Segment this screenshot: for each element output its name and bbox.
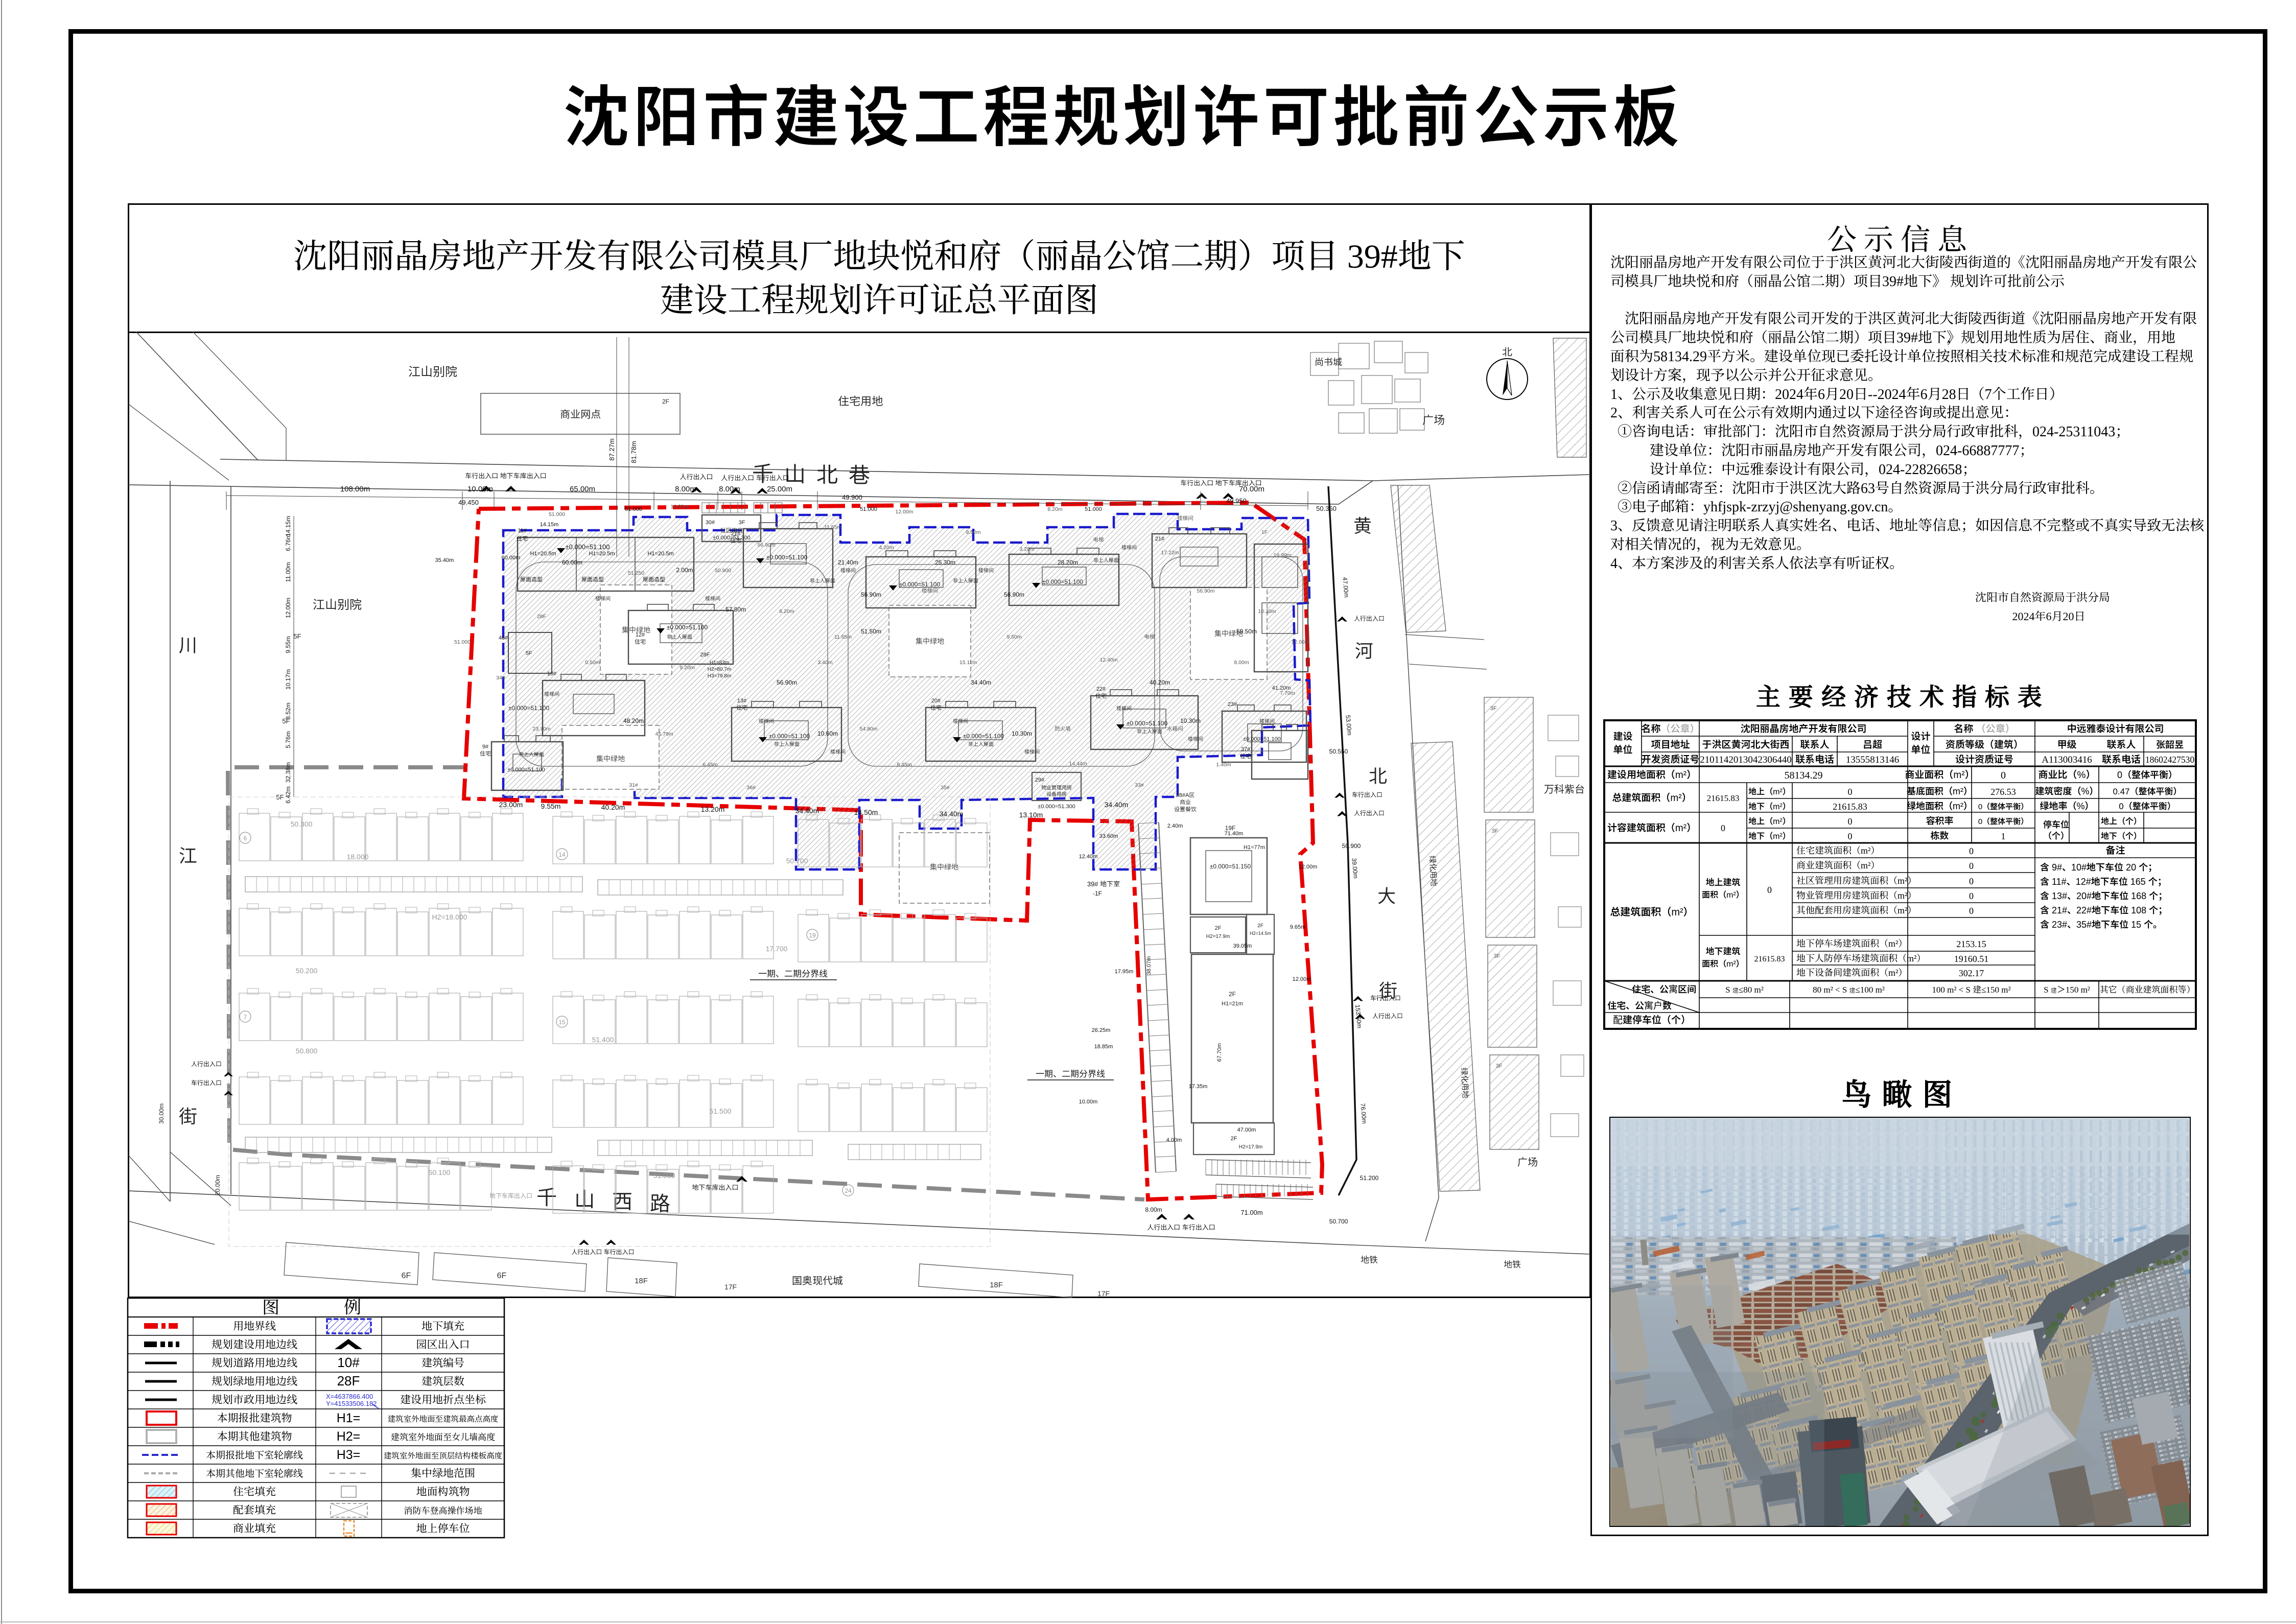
svg-text:23.70m: 23.70m — [532, 726, 550, 732]
svg-text:302.17: 302.17 — [1959, 968, 1984, 978]
svg-text:49.450: 49.450 — [458, 499, 479, 506]
svg-text:21615.83: 21615.83 — [1833, 802, 1867, 812]
svg-text:58134.29: 58134.29 — [1785, 770, 1823, 781]
svg-text:H2=17.9m: H2=17.9m — [1206, 934, 1230, 939]
svg-text:广场: 广场 — [1517, 1157, 1538, 1168]
svg-text:中远雅泰设计有限公司: 中远雅泰设计有限公司 — [2067, 723, 2164, 735]
svg-text:电梯: 电梯 — [1093, 537, 1105, 543]
svg-text:50.550: 50.550 — [1329, 748, 1348, 755]
svg-text:6: 6 — [244, 835, 247, 842]
svg-text:含 23#、35#地下车位 15 个。: 含 23#、35#地下车位 15 个。 — [2040, 920, 2162, 930]
svg-text:住宅建筑面积（m²）: 住宅建筑面积（m²） — [1796, 845, 1880, 856]
svg-text:项目地址: 项目地址 — [1651, 739, 1690, 750]
svg-text:2F: 2F — [1257, 923, 1263, 929]
svg-text:千: 千 — [536, 1187, 557, 1209]
svg-text:H2=17.9m: H2=17.9m — [1239, 1144, 1262, 1150]
svg-text:H1=20.5m: H1=20.5m — [589, 551, 615, 557]
svg-text:8.52m: 8.52m — [285, 702, 292, 719]
svg-text:20#: 20# — [931, 698, 941, 704]
svg-text:屋面造型: 屋面造型 — [643, 577, 665, 583]
svg-text:2.40m: 2.40m — [1167, 823, 1183, 829]
svg-text:楼梯间: 楼梯间 — [830, 749, 846, 755]
svg-text:含 21#、22#地下车位 108 个；: 含 21#、22#地下车位 108 个； — [2040, 905, 2167, 915]
svg-text:社区管理用房建筑面积（m²）: 社区管理用房建筑面积（m²） — [1796, 876, 1916, 886]
svg-text:江: 江 — [179, 845, 197, 866]
svg-text:一期、二期分界线: 一期、二期分界线 — [758, 969, 828, 979]
svg-text:17F: 17F — [724, 1283, 737, 1291]
svg-text:±0.000=51.100: ±0.000=51.100 — [1243, 736, 1281, 742]
svg-text:防火墙: 防火墙 — [1055, 726, 1071, 732]
svg-text:北: 北 — [1502, 347, 1512, 358]
svg-text:17.35m: 17.35m — [1189, 1084, 1208, 1090]
svg-text:28F: 28F — [700, 652, 710, 658]
svg-text:地下填充: 地下填充 — [421, 1320, 464, 1332]
svg-text:楼梯间: 楼梯间 — [840, 568, 856, 574]
svg-text:楼梯间: 楼梯间 — [759, 718, 774, 724]
svg-text:6.76m: 6.76m — [285, 534, 292, 551]
svg-text:地上（个）: 地上（个） — [2101, 817, 2142, 826]
svg-text:住宅、公寓区间: 住宅、公寓区间 — [1632, 984, 1696, 995]
svg-text:2F: 2F — [1215, 925, 1222, 931]
svg-text:12.40m: 12.40m — [1079, 854, 1098, 860]
svg-text:87.27m: 87.27m — [608, 438, 616, 460]
svg-text:53.00m: 53.00m — [1344, 715, 1353, 736]
svg-text:10.60m: 10.60m — [817, 730, 838, 737]
svg-text:10.30m: 10.30m — [1258, 608, 1276, 615]
svg-text:绿化用地: 绿化用地 — [1459, 1067, 1470, 1098]
svg-text:56.90m: 56.90m — [777, 679, 797, 686]
svg-text:地下人防停车场建筑面积（m²）: 地下人防停车场建筑面积（m²） — [1796, 953, 1926, 963]
svg-text:50.700: 50.700 — [1329, 1218, 1348, 1225]
svg-text:40.20m: 40.20m — [1150, 679, 1170, 686]
svg-text:7: 7 — [244, 1014, 247, 1021]
svg-text:100 m² < S 建≤150 m²: 100 m² < S 建≤150 m² — [1932, 985, 2010, 995]
svg-text:一期、二期分界线: 一期、二期分界线 — [1036, 1069, 1105, 1079]
svg-text:开发资质证号: 开发资质证号 — [1641, 754, 1699, 765]
svg-text:2F: 2F — [662, 398, 669, 405]
svg-text:非上人屋面: 非上人屋面 — [968, 742, 994, 747]
svg-text:51.50m: 51.50m — [861, 628, 881, 635]
svg-text:12.00m: 12.00m — [1299, 864, 1318, 870]
svg-text:34#: 34# — [496, 675, 505, 681]
svg-text:50.200: 50.200 — [296, 967, 318, 975]
svg-text:地铁: 地铁 — [1361, 1255, 1378, 1265]
svg-text:15: 15 — [558, 1019, 566, 1026]
svg-text:楼梯间: 楼梯间 — [1259, 718, 1275, 724]
svg-text:地上（m²）: 地上（m²） — [1748, 817, 1791, 826]
svg-text:建筑密度（%）: 建筑密度（%） — [2035, 786, 2098, 796]
svg-text:人行出入口 车行出入口: 人行出入口 车行出入口 — [721, 474, 789, 482]
svg-text:总建筑面积（m²）: 总建筑面积（m²） — [1610, 906, 1693, 918]
svg-text:楼梯间: 楼梯间 — [1024, 749, 1040, 755]
svg-text:大: 大 — [1377, 886, 1396, 907]
svg-text:5F: 5F — [526, 650, 532, 656]
svg-text:10.30m: 10.30m — [1180, 717, 1201, 724]
svg-text:54.80m: 54.80m — [859, 726, 877, 732]
svg-text:21.40m: 21.40m — [838, 559, 858, 566]
svg-text:10.30m: 10.30m — [670, 504, 688, 510]
svg-text:0（整体平衡）: 0（整体平衡） — [2117, 770, 2177, 780]
svg-text:名称 （公章）: 名称 （公章） — [1954, 723, 2014, 735]
svg-text:H1=77m: H1=77m — [1244, 844, 1265, 851]
svg-text:0: 0 — [2001, 770, 2006, 781]
svg-text:8.20m: 8.20m — [779, 608, 794, 615]
svg-text:单位: 单位 — [1911, 744, 1930, 756]
svg-text:51.000: 51.000 — [1085, 506, 1102, 512]
svg-text:车行出入口 地下车库出入口: 车行出入口 地下车库出入口 — [465, 472, 547, 480]
svg-text:71.00m: 71.00m — [1240, 1209, 1262, 1216]
svg-text:住宅填充: 住宅填充 — [233, 1486, 276, 1498]
svg-text:绿地面积（m²）: 绿地面积（m²） — [1907, 801, 1973, 811]
svg-text:楼梯间: 楼梯间 — [953, 718, 968, 724]
svg-text:含 11#、12#地下车位 165 个；: 含 11#、12#地下车位 165 个； — [2040, 877, 2167, 887]
svg-text:楼梯间: 楼梯间 — [595, 596, 611, 602]
svg-text:非上人屋面: 非上人屋面 — [774, 742, 800, 747]
svg-text:10.17m: 10.17m — [285, 669, 292, 690]
svg-text:8.00m: 8.00m — [1145, 1206, 1162, 1213]
svg-text:本期报批建筑物: 本期报批建筑物 — [217, 1412, 292, 1424]
svg-text:50.350: 50.350 — [1316, 505, 1337, 512]
svg-text:资质等级（建筑）: 资质等级（建筑） — [1946, 739, 2023, 750]
svg-text:规划市政用地边线: 规划市政用地边线 — [212, 1394, 297, 1406]
svg-text:±0.000=51.100: ±0.000=51.100 — [766, 554, 808, 561]
svg-text:于洪区黄河北大街西: 于洪区黄河北大街西 — [1702, 739, 1789, 750]
svg-text:57.80m: 57.80m — [725, 606, 746, 613]
svg-text:13.20m: 13.20m — [701, 805, 725, 813]
svg-text:商业比（%）: 商业比（%） — [2039, 769, 2096, 781]
svg-text:9.55m: 9.55m — [285, 636, 292, 653]
svg-text:住宅、公寓户数: 住宅、公寓户数 — [1607, 1001, 1672, 1011]
svg-text:其它（商业建筑面积等）: 其它（商业建筑面积等） — [2100, 985, 2195, 995]
svg-text:21615.83: 21615.83 — [1754, 955, 1785, 963]
svg-text:面积（m²）: 面积（m²） — [1702, 890, 1744, 900]
svg-text:25.30m: 25.30m — [935, 559, 955, 566]
svg-text:0: 0 — [1969, 846, 1974, 856]
svg-text:18.85m: 18.85m — [1094, 1044, 1113, 1050]
svg-text:0（整体平衡）: 0（整体平衡） — [2119, 802, 2175, 811]
svg-text:设计: 设计 — [1911, 731, 1930, 742]
svg-text:11.65m: 11.65m — [834, 634, 852, 640]
svg-text:56.90m: 56.90m — [1197, 588, 1214, 594]
svg-text:3F: 3F — [1492, 828, 1498, 834]
svg-text:H3=: H3= — [337, 1448, 361, 1462]
svg-text:26.25m: 26.25m — [1092, 1027, 1111, 1033]
svg-text:住宅: 住宅 — [1095, 693, 1107, 699]
svg-text:81.78m: 81.78m — [630, 441, 638, 463]
svg-text:H1=20.5m: H1=20.5m — [530, 551, 556, 557]
svg-text:地下停车场建筑面积（m²）: 地下停车场建筑面积（m²） — [1796, 938, 1907, 949]
svg-text:3.20m: 3.20m — [1019, 546, 1034, 552]
svg-text:1.40m: 1.40m — [1216, 762, 1231, 768]
svg-text:容积率: 容积率 — [1926, 816, 1954, 826]
svg-text:备注: 备注 — [2105, 845, 2125, 856]
svg-text:X=4637866.400: X=4637866.400 — [326, 1393, 373, 1400]
svg-text:尚书城: 尚书城 — [1315, 357, 1342, 367]
svg-text:4.20m: 4.20m — [879, 545, 894, 551]
svg-text:人行出入口 车行出入口: 人行出入口 车行出入口 — [571, 1249, 634, 1256]
svg-text:10.00m: 10.00m — [467, 485, 493, 493]
svg-text:含 9#、10#地下车位 20 个；: 含 9#、10#地下车位 20 个； — [2040, 862, 2157, 873]
svg-text:34.40m: 34.40m — [1105, 801, 1129, 809]
svg-text:建筑室外地面至建筑最高点高度: 建筑室外地面至建筑最高点高度 — [387, 1415, 498, 1424]
svg-text:22#: 22# — [1096, 686, 1106, 692]
svg-text:12.40m: 12.40m — [1099, 657, 1117, 663]
svg-text:6.45m: 6.45m — [702, 762, 717, 768]
svg-text:楼梯间: 楼梯间 — [1116, 705, 1132, 712]
svg-text:2F: 2F — [1231, 1136, 1237, 1142]
svg-text:4.00m: 4.00m — [1166, 1137, 1182, 1143]
svg-text:38#A区: 38#A区 — [1176, 792, 1195, 798]
svg-text:14.15m: 14.15m — [540, 522, 559, 528]
svg-text:建设用地折点坐标: 建设用地折点坐标 — [400, 1394, 486, 1406]
svg-text:建设: 建设 — [1613, 731, 1632, 742]
svg-text:非上人屋面: 非上人屋面 — [667, 634, 692, 640]
svg-text:70.00m: 70.00m — [1239, 485, 1264, 493]
svg-text:楼梯间: 楼梯间 — [922, 588, 938, 594]
svg-text:甲级: 甲级 — [2057, 739, 2076, 750]
svg-text:物业管理用房: 物业管理用房 — [1041, 785, 1072, 791]
svg-text:13555813146: 13555813146 — [1846, 755, 1900, 765]
svg-text:0: 0 — [1721, 823, 1725, 833]
svg-text:地下（m²）: 地下（m²） — [1748, 832, 1791, 841]
svg-text:川: 川 — [179, 635, 197, 656]
svg-text:地下（m²）: 地下（m²） — [1748, 802, 1791, 811]
svg-text:11.65m: 11.65m — [824, 524, 841, 530]
svg-text:地下设备间建筑面积（m²）: 地下设备间建筑面积（m²） — [1796, 968, 1907, 978]
svg-text:园区出入口: 园区出入口 — [416, 1338, 470, 1351]
svg-text:河: 河 — [1355, 641, 1373, 662]
svg-text:S 建＞150 m²: S 建＞150 m² — [2044, 985, 2090, 995]
svg-text:建筑编号: 建筑编号 — [421, 1357, 464, 1369]
svg-text:电梯: 电梯 — [1144, 634, 1156, 640]
svg-text:33#: 33# — [1135, 782, 1144, 788]
svg-text:51.200: 51.200 — [1360, 1174, 1379, 1182]
svg-text:规划建设用地边线: 规划建设用地边线 — [212, 1338, 297, 1351]
svg-text:8.20m: 8.20m — [1047, 506, 1062, 512]
svg-text:34.40m: 34.40m — [940, 810, 964, 818]
svg-text:本期其他地下室轮廓线: 本期其他地下室轮廓线 — [206, 1468, 303, 1479]
svg-text:人行出入口: 人行出入口 — [1354, 810, 1385, 817]
svg-text:40.20m: 40.20m — [601, 803, 625, 811]
svg-text:15.11m: 15.11m — [959, 660, 977, 666]
svg-text:2.00m: 2.00m — [676, 567, 693, 574]
svg-text:H1=20.5m: H1=20.5m — [647, 551, 673, 557]
svg-text:23#: 23# — [1228, 701, 1237, 708]
svg-text:10.00m: 10.00m — [1079, 1099, 1098, 1105]
svg-text:0（整体平衡）: 0（整体平衡） — [1978, 817, 2028, 826]
svg-text:商业建筑面积（m²）: 商业建筑面积（m²） — [1796, 860, 1880, 870]
svg-text:0: 0 — [1848, 787, 1853, 797]
svg-text:0: 0 — [1969, 861, 1974, 871]
svg-text:±0.000=51.100: ±0.000=51.100 — [507, 767, 545, 773]
svg-text:H1=: H1= — [337, 1411, 361, 1425]
svg-text:±0.000=51.100: ±0.000=51.100 — [1127, 720, 1168, 727]
svg-text:张韶昱: 张韶昱 — [2156, 740, 2184, 750]
svg-text:37#: 37# — [1241, 746, 1251, 752]
svg-text:0.50m: 0.50m — [585, 660, 600, 666]
svg-text:50.100: 50.100 — [429, 1168, 451, 1176]
svg-text:规划绿地用地边线: 规划绿地用地边线 — [212, 1375, 297, 1387]
svg-text:本期报批地下室轮廓线: 本期报批地下室轮廓线 — [206, 1450, 303, 1461]
svg-text:34.40m: 34.40m — [971, 679, 991, 686]
svg-text:8.00m: 8.00m — [1234, 660, 1249, 666]
svg-text:名称（公章）: 名称（公章） — [1641, 723, 1699, 735]
svg-text:30.00m: 30.00m — [158, 1103, 165, 1124]
svg-text:50.300: 50.300 — [291, 820, 313, 828]
svg-text:北: 北 — [1369, 766, 1387, 787]
svg-text:8.00m: 8.00m — [719, 485, 740, 493]
svg-text:17F: 17F — [1097, 1289, 1110, 1298]
svg-text:0.47（整体平衡）: 0.47（整体平衡） — [2113, 787, 2182, 796]
svg-text:12#: 12# — [636, 632, 645, 638]
svg-text:楼梯间: 楼梯间 — [978, 568, 994, 574]
svg-text:3.40m: 3.40m — [817, 660, 832, 666]
svg-text:S 建≤80 m²: S 建≤80 m² — [1725, 985, 1764, 995]
svg-text:1: 1 — [2001, 831, 2006, 841]
svg-text:9.20m: 9.20m — [680, 665, 694, 671]
svg-text:14.15m: 14.15m — [285, 516, 292, 536]
svg-text:地铁: 地铁 — [1504, 1260, 1521, 1269]
svg-text:45.79m: 45.79m — [655, 731, 673, 737]
svg-text:江山别院: 江山别院 — [313, 598, 362, 612]
svg-text:联系电话: 联系电话 — [2102, 754, 2141, 765]
svg-text:51.000: 51.000 — [454, 639, 471, 645]
svg-text:住宅: 住宅 — [736, 704, 747, 711]
svg-text:6F: 6F — [402, 1272, 411, 1280]
svg-text:本期其他建筑物: 本期其他建筑物 — [217, 1430, 292, 1443]
svg-text:联系人: 联系人 — [2106, 739, 2136, 750]
svg-text:±0.000=51.300: ±0.000=51.300 — [713, 535, 751, 541]
svg-text:18602427530: 18602427530 — [2145, 755, 2195, 765]
svg-text:51.000: 51.000 — [549, 511, 565, 517]
svg-text:配建停车位（个）: 配建停车位（个） — [1613, 1015, 1691, 1026]
svg-text:17.95m: 17.95m — [1115, 969, 1134, 975]
svg-text:49.900: 49.900 — [842, 493, 862, 501]
svg-text:0: 0 — [1969, 891, 1974, 901]
svg-text:地下建筑: 地下建筑 — [1706, 947, 1741, 956]
svg-text:40#: 40# — [499, 635, 508, 641]
svg-text:地上建筑: 地上建筑 — [1706, 878, 1741, 887]
svg-text:±0.000=51.100: ±0.000=51.100 — [508, 704, 550, 712]
svg-text:0（整体平衡）: 0（整体平衡） — [1978, 803, 2028, 811]
svg-text:±0.000=51.100: ±0.000=51.100 — [899, 581, 941, 588]
svg-text:楼梯间: 楼梯间 — [1121, 545, 1137, 551]
svg-text:65.00m: 65.00m — [570, 485, 595, 493]
svg-text:25.00m: 25.00m — [767, 485, 792, 493]
svg-text:3F: 3F — [1496, 1063, 1503, 1069]
svg-text:276.53: 276.53 — [1990, 787, 2016, 797]
svg-text:7.70m: 7.70m — [1280, 690, 1295, 696]
svg-text:车行出入口: 车行出入口 — [191, 1079, 222, 1087]
svg-text:用地界线: 用地界线 — [233, 1320, 276, 1332]
svg-text:60.00m: 60.00m — [502, 555, 521, 561]
svg-text:人行出入口: 人行出入口 — [1372, 1013, 1403, 1020]
svg-text:12.00m: 12.00m — [895, 509, 913, 515]
svg-text:30#: 30# — [706, 520, 715, 526]
svg-text:集中绿地范围: 集中绿地范围 — [411, 1467, 475, 1479]
svg-text:人行出入口 车行出入口: 人行出入口 车行出入口 — [1147, 1223, 1215, 1231]
svg-text:0: 0 — [1767, 885, 1772, 895]
svg-text:11#: 11# — [518, 528, 527, 534]
svg-text:联系人: 联系人 — [1800, 739, 1829, 750]
svg-text:地下（个）: 地下（个） — [2101, 832, 2142, 841]
svg-text:图: 图 — [262, 1299, 279, 1317]
svg-text:±0.000=51.100: ±0.000=51.100 — [1042, 578, 1084, 585]
svg-text:0: 0 — [1969, 876, 1974, 886]
svg-text:10.30m: 10.30m — [1012, 730, 1032, 737]
svg-text:设备用房: 设备用房 — [1046, 791, 1067, 797]
svg-text:规划道路用地边线: 规划道路用地边线 — [212, 1357, 297, 1369]
svg-text:计容建筑面积（m²）: 计容建筑面积（m²） — [1607, 822, 1696, 834]
svg-text:6F: 6F — [497, 1272, 507, 1280]
svg-text:35.40m: 35.40m — [435, 557, 454, 563]
svg-text:住宅: 住宅 — [480, 750, 491, 757]
svg-text:万科紫台: 万科紫台 — [1544, 784, 1585, 795]
svg-text:楼梯间: 楼梯间 — [1177, 515, 1193, 522]
svg-text:39.05m: 39.05m — [1233, 943, 1252, 949]
svg-text:绿化用地: 绿化用地 — [1427, 855, 1438, 886]
svg-text:社区用房: 社区用房 — [720, 527, 743, 534]
svg-text:29#: 29# — [1035, 777, 1045, 783]
svg-text:18F: 18F — [990, 1281, 1003, 1289]
svg-text:人行出入口: 人行出入口 — [1354, 615, 1385, 622]
svg-text:9.55m: 9.55m — [541, 802, 561, 810]
svg-text:48.20m: 48.20m — [623, 717, 644, 724]
svg-text:H3=79.8m: H3=79.8m — [708, 673, 731, 679]
svg-text:栋数: 栋数 — [1931, 831, 1949, 841]
svg-text:物业管理用房建筑面积（m²）: 物业管理用房建筑面积（m²） — [1796, 890, 1916, 901]
svg-text:71.40m: 71.40m — [1225, 831, 1244, 837]
svg-text:±0.000=51.150: ±0.000=51.150 — [1210, 863, 1251, 870]
svg-text:35#: 35# — [941, 785, 950, 791]
svg-text:5F: 5F — [293, 632, 301, 640]
svg-text:楼梯间: 楼梯间 — [544, 691, 559, 697]
svg-text:沈阳丽晶房地产开发有限公司: 沈阳丽晶房地产开发有限公司 — [1740, 723, 1866, 735]
svg-text:基底面积（m²）: 基底面积（m²） — [1907, 786, 1973, 796]
svg-text:吕超: 吕超 — [1863, 739, 1882, 750]
svg-text:地下车库出入口: 地下车库出入口 — [489, 1192, 532, 1199]
svg-text:18F: 18F — [635, 1277, 648, 1285]
svg-text:住宅: 住宅 — [930, 704, 942, 711]
svg-text:0: 0 — [1848, 831, 1853, 841]
svg-text:9.50m: 9.50m — [1006, 634, 1021, 640]
svg-text:28F: 28F — [537, 614, 546, 620]
svg-text:47.00m: 47.00m — [1237, 1127, 1256, 1133]
svg-text:2101142013042306440: 2101142013042306440 — [1700, 755, 1792, 765]
svg-text:50.900: 50.900 — [1342, 842, 1361, 850]
svg-text:67.70m: 67.70m — [1216, 1043, 1223, 1062]
svg-text:51.250: 51.250 — [628, 570, 644, 576]
svg-text:住宅: 住宅 — [1240, 753, 1251, 760]
svg-text:39# 地下室: 39# 地下室 — [1087, 880, 1120, 888]
svg-text:51.000: 51.000 — [625, 506, 642, 512]
svg-text:36#: 36# — [746, 785, 756, 791]
svg-text:2153.15: 2153.15 — [1956, 939, 1986, 949]
svg-text:商业网点: 商业网点 — [560, 409, 601, 420]
svg-text:11.00m: 11.00m — [285, 562, 292, 582]
svg-text:屋面造型: 屋面造型 — [520, 577, 543, 583]
svg-text:12.00m: 12.00m — [285, 598, 292, 618]
svg-text:住宅: 住宅 — [635, 639, 646, 645]
svg-text:人行出入口: 人行出入口 — [191, 1061, 222, 1068]
svg-text:H2=80.7m: H2=80.7m — [708, 667, 731, 672]
svg-text:49.950: 49.950 — [1226, 497, 1247, 505]
svg-text:56.90m: 56.90m — [1004, 591, 1024, 598]
svg-text:31#: 31# — [629, 782, 638, 788]
svg-text:3F: 3F — [1490, 705, 1497, 712]
svg-text:街: 街 — [179, 1106, 197, 1127]
svg-text:14: 14 — [558, 851, 566, 858]
